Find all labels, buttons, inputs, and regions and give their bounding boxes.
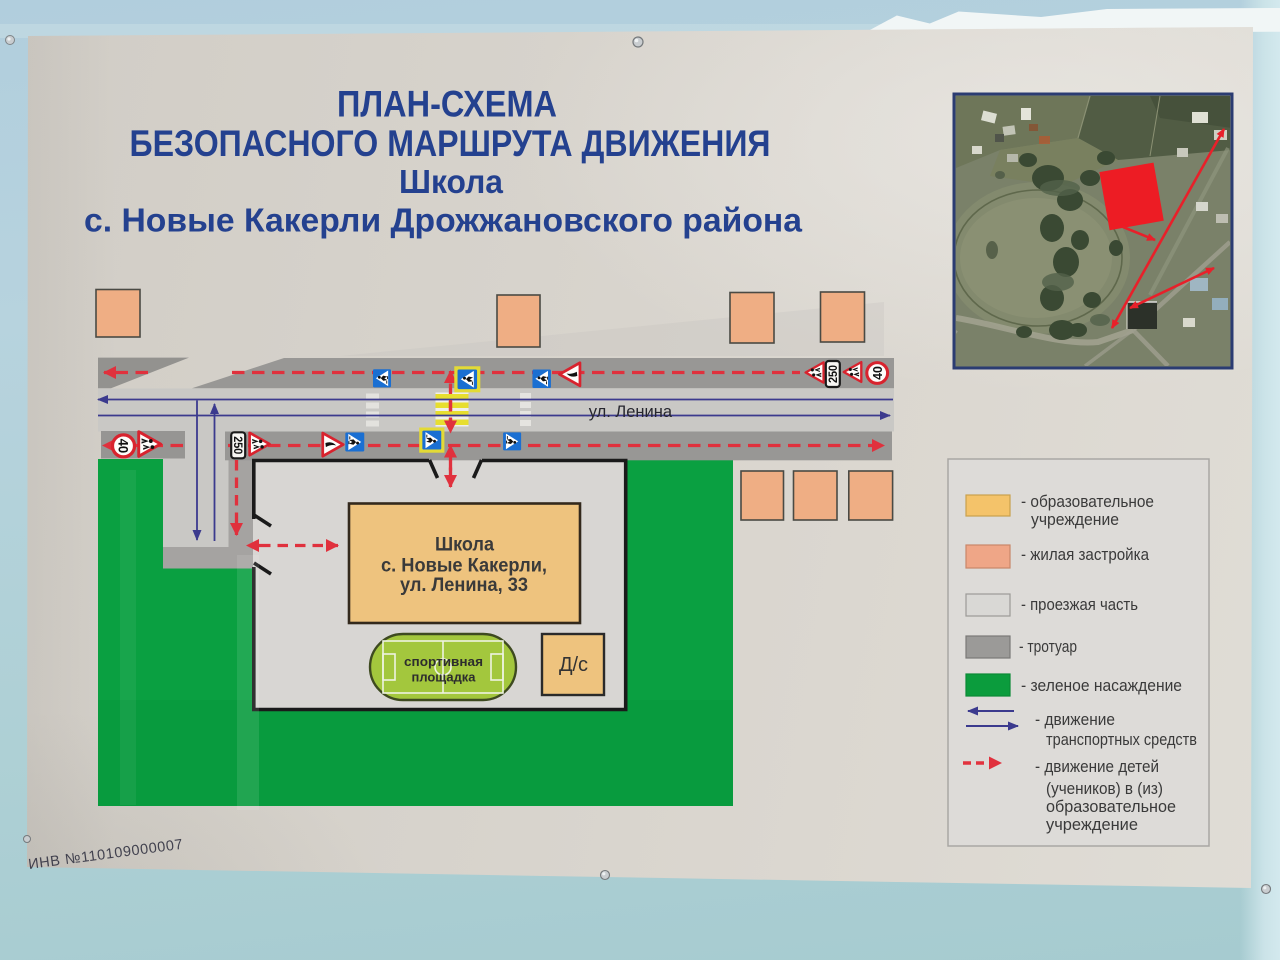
svg-text:Школа: Школа bbox=[435, 534, 494, 556]
svg-text:с. Новые Какерли Дрожжановског: с. Новые Какерли Дрожжановского района bbox=[84, 203, 802, 240]
svg-text:- жилая застройка: - жилая застройка bbox=[1021, 546, 1150, 564]
svg-text:спортивная: спортивная bbox=[404, 655, 483, 669]
svg-text:(учеников) в (из): (учеников) в (из) bbox=[1046, 780, 1163, 798]
svg-text:Д/с: Д/с bbox=[559, 654, 588, 676]
svg-text:- движение: - движение bbox=[1035, 711, 1115, 729]
svg-text:Школа: Школа bbox=[399, 164, 503, 201]
svg-text:образовательное: образовательное bbox=[1046, 798, 1176, 816]
svg-text:учреждение: учреждение bbox=[1046, 816, 1138, 834]
svg-text:учреждение: учреждение bbox=[1031, 511, 1119, 529]
svg-text:ул. Ленина: ул. Ленина bbox=[589, 403, 673, 421]
svg-text:площадка: площадка bbox=[412, 671, 477, 685]
svg-text:ул. Ленина, 33: ул. Ленина, 33 bbox=[400, 574, 528, 596]
svg-text:транспортных средств: транспортных средств bbox=[1046, 731, 1197, 749]
svg-text:- образовательное: - образовательное bbox=[1021, 493, 1154, 511]
svg-text:- зеленое насаждение: - зеленое насаждение bbox=[1021, 677, 1182, 695]
svg-text:БЕЗОПАСНОГО МАРШРУТА ДВИЖЕНИЯ: БЕЗОПАСНОГО МАРШРУТА ДВИЖЕНИЯ bbox=[130, 122, 771, 164]
svg-text:ПЛАН-СХЕМА: ПЛАН-СХЕМА bbox=[337, 84, 557, 125]
svg-text:- проезжая часть: - проезжая часть bbox=[1021, 596, 1138, 614]
svg-text:- движение детей: - движение детей bbox=[1035, 758, 1159, 776]
svg-text:- тротуар: - тротуар bbox=[1019, 638, 1077, 656]
svg-text:ИНВ №110109000007: ИНВ №110109000007 bbox=[27, 837, 184, 873]
